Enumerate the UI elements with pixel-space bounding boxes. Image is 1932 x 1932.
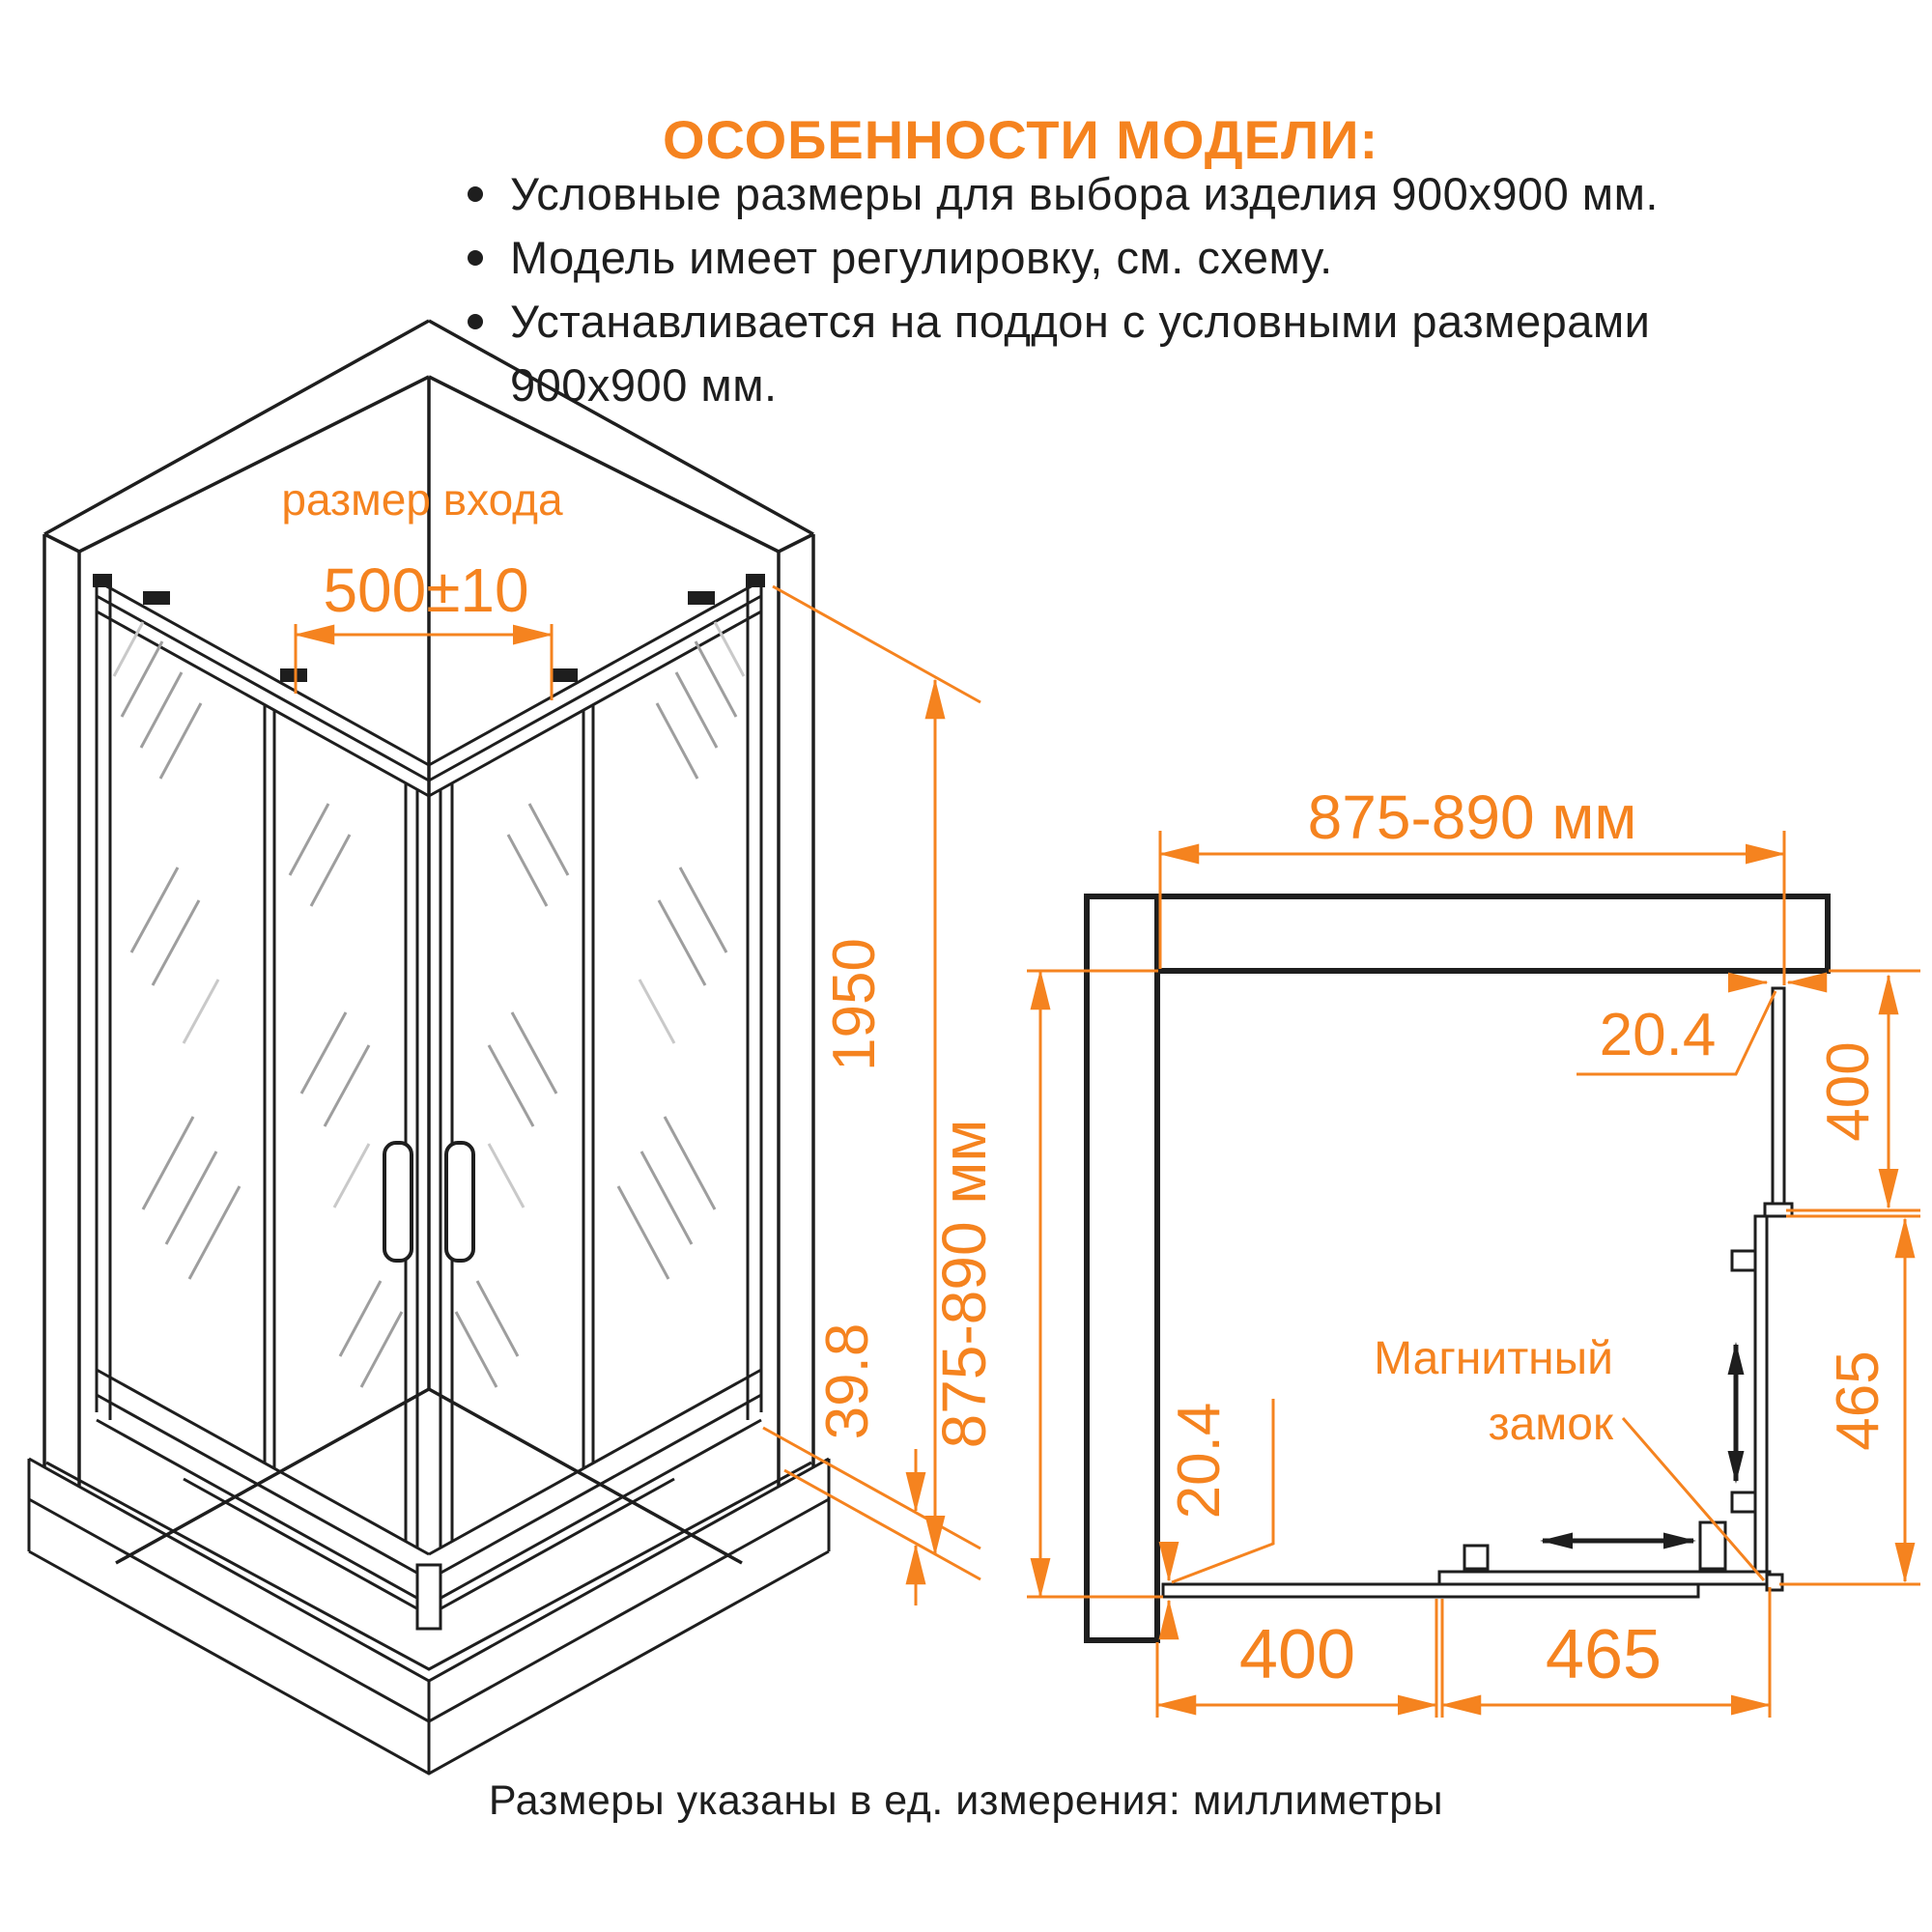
entry-width-dim: 500±10 [323, 555, 528, 625]
gap-dim-bottom: 20.4 [1166, 1403, 1233, 1520]
plan-door-knob [1732, 1492, 1755, 1512]
plan-view: 875-890 мм 875-890 мм 20.4 400 465 20.4 … [929, 782, 1920, 1718]
iso-dimensions [296, 586, 980, 1605]
technical-drawing: размер входа 500±10 1950 39.8 [0, 0, 1932, 1932]
panel-dim-right-door: 465 [1825, 1350, 1891, 1450]
plan-door-knob [1732, 1251, 1755, 1270]
iso-view: размер входа 500±10 1950 39.8 [29, 321, 980, 1774]
profile-height-dim: 39.8 [814, 1323, 881, 1440]
entry-size-label: размер входа [281, 474, 563, 525]
magnetic-lock-label: замок [1489, 1399, 1614, 1450]
plan-fixed-panel-bottom [1163, 1584, 1698, 1597]
magnetic-lock-label: Магнитный [1374, 1333, 1613, 1384]
plan-door-bottom [1439, 1572, 1770, 1584]
plan-wall-top [1087, 896, 1828, 971]
plan-door-knob [1464, 1546, 1488, 1569]
panel-dim-bottom-door: 465 [1546, 1616, 1662, 1693]
panel-dim-bottom-fixed: 400 [1239, 1616, 1355, 1693]
plan-depth-dim: 875-890 мм [929, 1120, 999, 1449]
plan-fixed-panel-right [1773, 988, 1784, 1207]
height-dim: 1950 [821, 938, 888, 1071]
panel-dim-right-fixed: 400 [1815, 1041, 1882, 1141]
units-note: Размеры указаны в ед. измерения: миллиме… [0, 1777, 1932, 1825]
spec-sheet: ОСОБЕННОСТИ МОДЕЛИ: Условные размеры для… [0, 0, 1932, 1932]
plan-wall-left [1087, 896, 1157, 1640]
plan-door-right [1755, 1216, 1767, 1584]
plan-width-dim: 875-890 мм [1308, 782, 1637, 852]
gap-dim-top: 20.4 [1600, 1002, 1717, 1068]
